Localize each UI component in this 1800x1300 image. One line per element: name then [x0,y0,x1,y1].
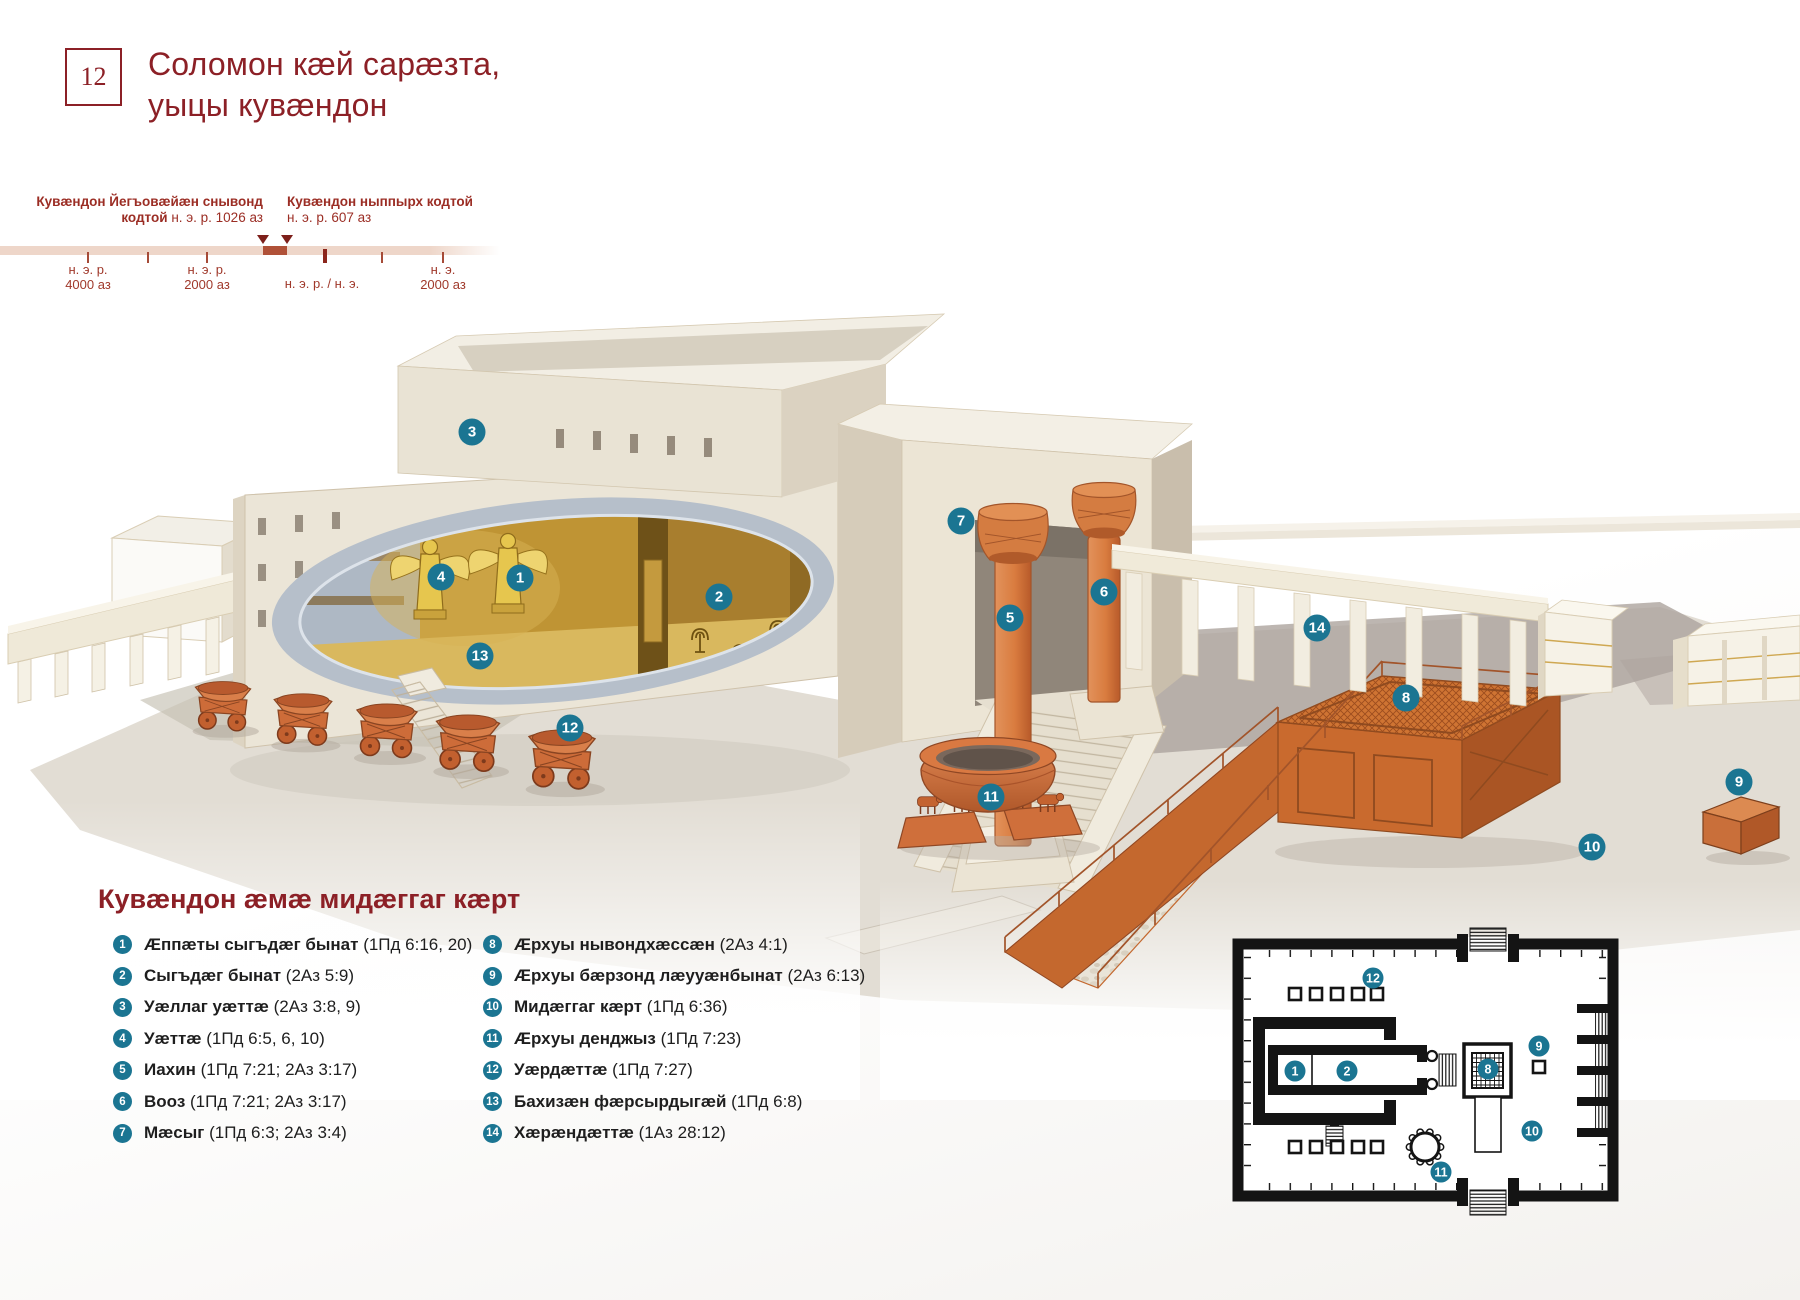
legend-item-number: 4 [113,1029,132,1048]
legend-item-number: 6 [113,1092,132,1111]
legend-item: 6Вооз (1Пд 7:21; 2Аз 3:17) [113,1086,473,1117]
legend-column-1: 1Æппæты сыгъдæг бынат (1Пд 6:16, 20)2Сыг… [113,929,473,1149]
legend-item: 7Мæсыг (1Пд 6:3; 2Аз 3:4) [113,1117,473,1148]
legend-item-number: 5 [113,1061,132,1080]
legend-item-text: Æппæты сыгъдæг бынат (1Пд 6:16, 20) [144,935,472,955]
legend-item-text: Бахизæн фæрсырдыгæй (1Пд 6:8) [514,1092,802,1112]
legend-item-number: 2 [113,967,132,986]
legend-item-number: 9 [483,967,502,986]
legend-item: 5Иахин (1Пд 7:21; 2Аз 3:17) [113,1055,473,1086]
legend-item-text: Æрхуы бæрзонд лæууæнбынат (2Аз 6:13) [514,966,865,986]
legend-item: 3Уæллаг уæттæ (2Аз 3:8, 9) [113,992,473,1023]
legend-item: 12Уæрдæттæ (1Пд 7:27) [483,1055,883,1086]
legend-item-number: 7 [113,1124,132,1143]
legend-item-text: Иахин (1Пд 7:21; 2Аз 3:17) [144,1060,357,1080]
floor-plan [1238,928,1613,1215]
legend-item-number: 14 [483,1124,502,1143]
legend-item: 4Уæттæ (1Пд 6:5, 6, 10) [113,1023,473,1054]
legend-item-number: 1 [113,935,132,954]
legend-item: 11Æрхуы денджыз (1Пд 7:23) [483,1023,883,1054]
legend-item-text: Вооз (1Пд 7:21; 2Аз 3:17) [144,1092,347,1112]
copper-platform [1703,797,1790,865]
legend-item-number: 11 [483,1029,502,1048]
legend-item: 13Бахизæн фæрсырдыгæй (1Пд 6:8) [483,1086,883,1117]
legend-item-number: 13 [483,1092,502,1111]
legend-item-number: 3 [113,998,132,1017]
legend-item: 8Æрхуы нывондхæссæн (2Аз 4:1) [483,929,883,960]
legend-item: 14Хæрæндæттæ (1Аз 28:12) [483,1117,883,1148]
legend-column-2: 8Æрхуы нывондхæссæн (2Аз 4:1)9Æрхуы бæрз… [483,929,883,1149]
legend-item-text: Уæрдæттæ (1Пд 7:27) [514,1060,693,1080]
legend-item-number: 12 [483,1061,502,1080]
page: 12 Соломон кæй сарæзта, уыцы кувæндон Ку… [0,0,1800,1300]
legend-item-text: Æрхуы денджыз (1Пд 7:23) [514,1029,741,1049]
legend-item-text: Хæрæндæттæ (1Аз 28:12) [514,1123,726,1143]
legend-item-text: Уæттæ (1Пд 6:5, 6, 10) [144,1029,325,1049]
legend-item: 9Æрхуы бæрзонд лæууæнбынат (2Аз 6:13) [483,960,883,991]
plan-platform [1533,1061,1545,1073]
legend-item: 1Æппæты сыгъдæг бынат (1Пд 6:16, 20) [113,929,473,960]
legend-item-number: 10 [483,998,502,1017]
legend-item-text: Мæсыг (1Пд 6:3; 2Аз 3:4) [144,1123,347,1143]
legend-item-text: Уæллаг уæттæ (2Аз 3:8, 9) [144,997,361,1017]
legend-item-number: 8 [483,935,502,954]
legend-item-text: Сыгъдæг бынат (2Аз 5:9) [144,966,354,986]
legend-item-text: Мидæггаг кæрт (1Пд 6:36) [514,997,728,1017]
plan-sea [1406,1129,1443,1165]
legend-item-text: Æрхуы нывондхæссæн (2Аз 4:1) [514,935,788,955]
legend-item: 2Сыгъдæг бынат (2Аз 5:9) [113,960,473,991]
legend-item: 10Мидæггаг кæрт (1Пд 6:36) [483,992,883,1023]
legend-title: Кувæндон æмæ мидæггаг кæрт [98,884,520,915]
